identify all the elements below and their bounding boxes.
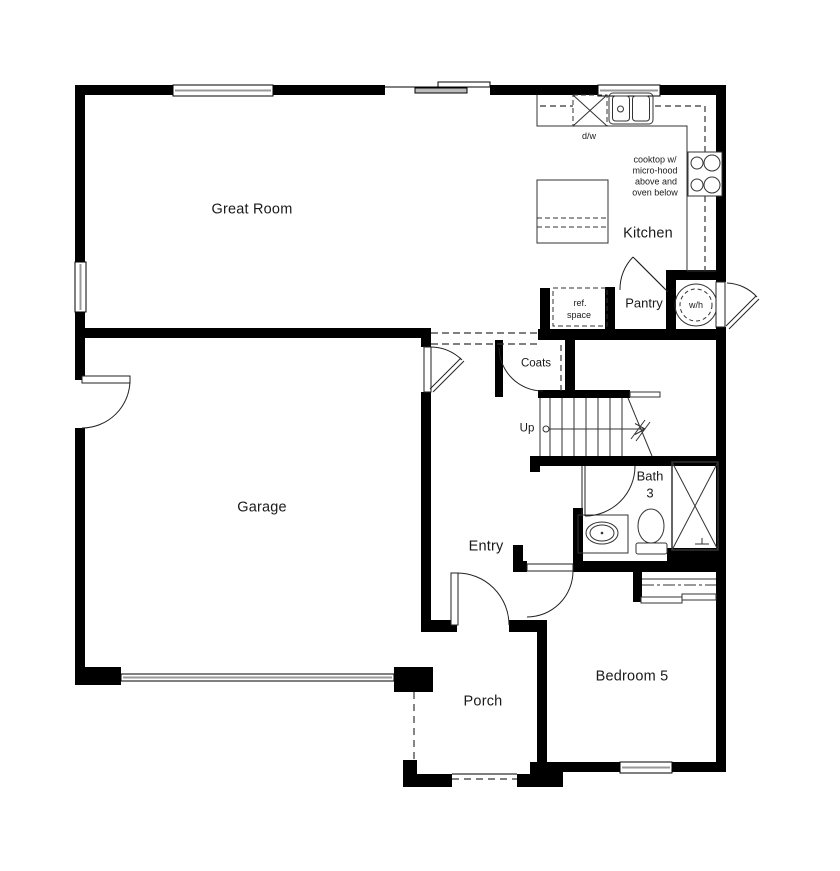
- annotation-cooktop-line4: oven below: [632, 188, 678, 199]
- floor-plan-drawing: [0, 0, 840, 871]
- windows: [75, 82, 672, 773]
- door-garage-hall: [424, 347, 464, 392]
- room-label-pantry: Pantry: [625, 297, 663, 312]
- annotation-ref-line2: space: [567, 310, 591, 320]
- window-great-room-top: [173, 85, 273, 96]
- sink-symbol: [609, 93, 653, 124]
- garage-door: [121, 674, 394, 681]
- door-garage-side: [82, 376, 130, 428]
- room-label-bath3-line1: Bath: [637, 470, 664, 485]
- annotation-cooktop-line2: micro-hood: [632, 166, 677, 177]
- room-label-kitchen: Kitchen: [623, 226, 673, 243]
- room-label-porch: Porch: [464, 694, 503, 711]
- stairs: [540, 392, 660, 456]
- room-label-coats: Coats: [521, 357, 551, 370]
- sliding-door-top: [385, 82, 490, 93]
- window-bedroom-bottom: [620, 762, 672, 773]
- shower-symbol: [672, 462, 718, 550]
- island-symbol: [537, 180, 608, 243]
- annotation-cooktop-line3: above and: [635, 177, 677, 188]
- annotation-cooktop-line1: cooktop w/: [633, 155, 676, 166]
- toilet-symbol: [636, 509, 667, 554]
- annotation-ref-line1: ref.: [573, 298, 586, 308]
- door-bath3: [582, 466, 635, 516]
- annotation-dishwasher: d/w: [582, 131, 596, 141]
- cooktop-symbol: [688, 152, 722, 196]
- kitchen-fixtures: [537, 93, 722, 326]
- room-label-entry: Entry: [469, 539, 504, 556]
- up-arrow: [543, 420, 650, 441]
- window-great-room-left: [75, 262, 86, 312]
- dishwasher-symbol: [573, 95, 607, 126]
- annotation-water-heater: w/h: [689, 300, 703, 310]
- door-bedroom5: [527, 564, 573, 617]
- room-label-great-room: Great Room: [212, 202, 293, 219]
- bedroom-closet: [641, 579, 716, 603]
- floor-plan: Great Room Kitchen Garage Entry Bedroom …: [0, 0, 840, 871]
- annotation-up: Up: [520, 422, 535, 435]
- room-label-bedroom5: Bedroom 5: [596, 669, 669, 686]
- room-label-garage: Garage: [237, 500, 287, 517]
- window-kitchen-top: [598, 85, 660, 96]
- vanity-sink-symbol: [578, 515, 628, 553]
- door-water-heater: [716, 282, 759, 329]
- door-front-entry: [451, 573, 509, 625]
- door-pantry: [620, 257, 668, 292]
- room-label-bath3-line2: 3: [646, 487, 653, 502]
